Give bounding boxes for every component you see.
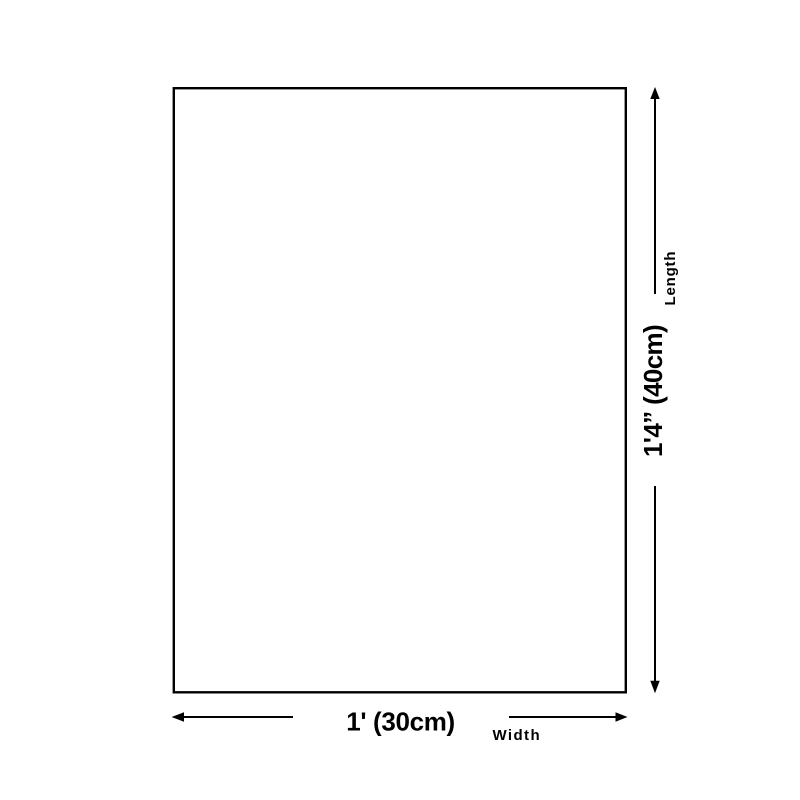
svg-text:1' (30cm): 1' (30cm) (346, 707, 455, 737)
svg-text:Width: Width (493, 727, 542, 744)
svg-text:Length: Length (662, 251, 679, 306)
svg-text:1'4” (40cm): 1'4” (40cm) (638, 325, 668, 457)
